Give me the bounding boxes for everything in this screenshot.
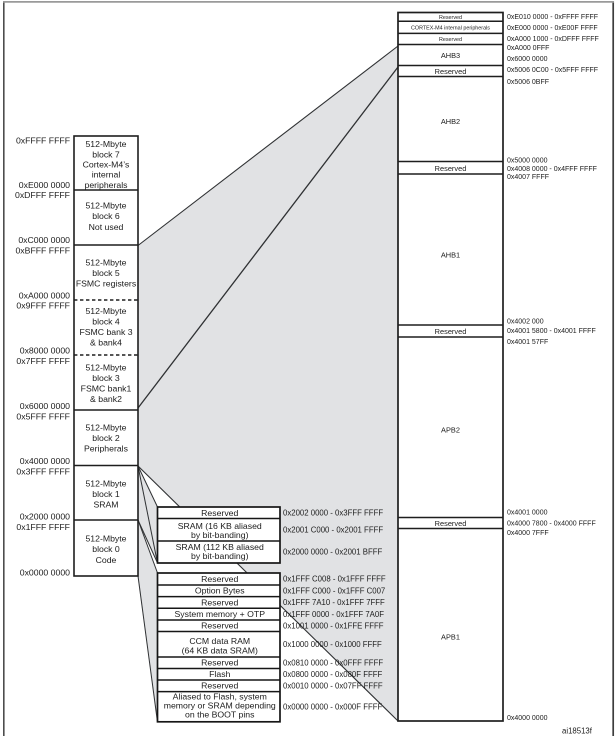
svg-text:block 3: block 3 <box>92 373 120 383</box>
svg-text:0xE000 0000: 0xE000 0000 <box>19 180 70 190</box>
svg-text:0x5000 0000: 0x5000 0000 <box>507 157 548 164</box>
svg-text:0x5006 0BFF: 0x5006 0BFF <box>507 79 549 86</box>
svg-text:peripherals: peripherals <box>85 180 129 190</box>
svg-text:0x0010 0000 - 0x07FF FFFF: 0x0010 0000 - 0x07FF FFFF <box>283 682 383 691</box>
svg-text:by bit-banding): by bit-banding) <box>191 551 249 561</box>
svg-text:512-Mbyte: 512-Mbyte <box>85 533 126 543</box>
svg-text:0xE010 0000 - 0xFFFF FFFF: 0xE010 0000 - 0xFFFF FFFF <box>507 14 598 21</box>
svg-text:Flash: Flash <box>209 669 230 679</box>
svg-text:Reserved: Reserved <box>439 15 462 21</box>
svg-text:0x3FFF FFFF: 0x3FFF FFFF <box>16 467 70 477</box>
svg-text:0x1FFF C000 - 0x1FFF C007: 0x1FFF C000 - 0x1FFF C007 <box>283 587 385 596</box>
svg-text:0x5FFF FFFF: 0x5FFF FFFF <box>16 412 70 422</box>
svg-text:Reserved: Reserved <box>435 67 467 76</box>
svg-text:Reserved: Reserved <box>201 508 238 518</box>
svg-text:0x2001 C000 - 0x2001 FFFF: 0x2001 C000 - 0x2001 FFFF <box>283 526 383 535</box>
svg-text:512-Mbyte: 512-Mbyte <box>85 258 126 268</box>
svg-text:FSMC registers: FSMC registers <box>76 278 137 288</box>
svg-text:0xA000 1000 - 0xDFFF FFFF: 0xA000 1000 - 0xDFFF FFFF <box>507 36 599 43</box>
svg-text:0xA000 0FFF: 0xA000 0FFF <box>507 45 549 52</box>
svg-text:0xA000 0000: 0xA000 0000 <box>19 291 70 301</box>
svg-text:0x1001 0000 - 0x1FFE FFFF: 0x1001 0000 - 0x1FFE FFFF <box>283 621 384 630</box>
svg-text:CCM data RAM: CCM data RAM <box>189 636 250 646</box>
svg-text:0x2000 0000: 0x2000 0000 <box>20 512 70 522</box>
svg-text:512-Mbyte: 512-Mbyte <box>85 306 126 316</box>
svg-text:0x4000 0000: 0x4000 0000 <box>507 715 548 722</box>
svg-text:0x4001 5800 - 0x4001 FFFF: 0x4001 5800 - 0x4001 FFFF <box>507 328 596 335</box>
svg-text:0xC000 0000: 0xC000 0000 <box>18 235 70 245</box>
svg-text:APB1: APB1 <box>441 633 460 642</box>
svg-text:0x0000 0000: 0x0000 0000 <box>20 568 70 578</box>
svg-text:AHB1: AHB1 <box>441 251 460 260</box>
svg-text:0x5006 0C00 - 0x5FFF FFFF: 0x5006 0C00 - 0x5FFF FFFF <box>507 67 598 74</box>
svg-text:Reserved: Reserved <box>435 519 467 528</box>
svg-text:Reserved: Reserved <box>435 327 467 336</box>
svg-text:Reserved: Reserved <box>435 164 467 173</box>
svg-text:block 0: block 0 <box>92 544 120 554</box>
svg-text:by bit-banding): by bit-banding) <box>191 530 249 540</box>
svg-text:512-Mbyte: 512-Mbyte <box>85 479 126 489</box>
svg-text:0x4000 0000: 0x4000 0000 <box>20 456 70 466</box>
svg-text:0xE000 0000 - 0xE00F FFFF: 0xE000 0000 - 0xE00F FFFF <box>507 25 598 32</box>
svg-text:block 5: block 5 <box>92 268 120 278</box>
svg-text:Reserved: Reserved <box>201 597 238 607</box>
svg-text:APB2: APB2 <box>441 426 460 435</box>
svg-text:0x4000 7800 - 0x4000 FFFF: 0x4000 7800 - 0x4000 FFFF <box>507 520 596 527</box>
svg-text:0x8000 0000: 0x8000 0000 <box>20 346 70 356</box>
svg-text:Reserved: Reserved <box>439 37 462 43</box>
svg-text:512-Mbyte: 512-Mbyte <box>85 362 126 372</box>
svg-text:0x4007 FFFF: 0x4007 FFFF <box>507 174 549 181</box>
svg-text:0x1FFF 0000 - 0x1FFF 7A0F: 0x1FFF 0000 - 0x1FFF 7A0F <box>283 610 384 619</box>
svg-text:ai18513f: ai18513f <box>562 727 593 736</box>
svg-text:0x2000 0000 - 0x2001 BFFF: 0x2000 0000 - 0x2001 BFFF <box>283 548 382 557</box>
svg-text:Peripherals: Peripherals <box>84 443 129 453</box>
svg-text:0x2002 0000 - 0x3FFF FFFF: 0x2002 0000 - 0x3FFF FFFF <box>283 509 383 518</box>
svg-text:0x1FFF C008 - 0x1FFF FFFF: 0x1FFF C008 - 0x1FFF FFFF <box>283 575 386 584</box>
svg-text:block 7: block 7 <box>92 149 120 159</box>
svg-text:0xBFFF FFFF: 0xBFFF FFFF <box>15 246 70 256</box>
svg-text:Reserved: Reserved <box>201 621 238 631</box>
svg-text:0x1000 0000 - 0x1000 FFFF: 0x1000 0000 - 0x1000 FFFF <box>283 640 382 649</box>
svg-text:Not used: Not used <box>89 222 124 232</box>
svg-text:0xFFFF FFFF: 0xFFFF FFFF <box>16 136 70 146</box>
svg-text:0x0810 0000 - 0x0FFF FFFF: 0x0810 0000 - 0x0FFF FFFF <box>283 659 383 668</box>
svg-text:CORTEX-M4 internal peripherals: CORTEX-M4 internal peripherals <box>411 25 490 31</box>
svg-text:block 4: block 4 <box>92 316 120 326</box>
svg-text:512-Mbyte: 512-Mbyte <box>85 139 126 149</box>
svg-text:0xDFFF FFFF: 0xDFFF FFFF <box>15 190 70 200</box>
svg-text:Reserved: Reserved <box>201 574 238 584</box>
svg-text:System memory + OTP: System memory + OTP <box>174 609 265 619</box>
svg-text:internal: internal <box>92 170 121 180</box>
svg-text:0x4001 0000: 0x4001 0000 <box>507 510 548 517</box>
svg-text:0x0800 0000 - 0x080F FFFF: 0x0800 0000 - 0x080F FFFF <box>283 670 382 679</box>
svg-text:0x0000 0000 - 0x000F FFFF: 0x0000 0000 - 0x000F FFFF <box>283 702 382 711</box>
svg-text:(64 KB data SRAM): (64 KB data SRAM) <box>182 645 258 655</box>
svg-text:& bank4: & bank4 <box>90 337 122 347</box>
svg-text:& bank2: & bank2 <box>90 394 122 404</box>
svg-text:0x9FFF FFFF: 0x9FFF FFFF <box>16 301 70 311</box>
svg-text:0x1FFF FFFF: 0x1FFF FFFF <box>16 522 70 532</box>
svg-text:Code: Code <box>96 555 117 565</box>
svg-text:512-Mbyte: 512-Mbyte <box>85 200 126 210</box>
svg-text:0x1FFF 7A10 - 0x1FFF 7FFF: 0x1FFF 7A10 - 0x1FFF 7FFF <box>283 598 385 607</box>
svg-text:0x6000 0000: 0x6000 0000 <box>20 401 70 411</box>
svg-text:on the BOOT pins: on the BOOT pins <box>185 710 255 720</box>
svg-text:AHB3: AHB3 <box>441 51 460 60</box>
svg-text:Reserved: Reserved <box>201 681 238 691</box>
svg-text:FSMC bank1: FSMC bank1 <box>81 383 132 393</box>
svg-text:0x4008 0000 - 0x4FFF FFFF: 0x4008 0000 - 0x4FFF FFFF <box>507 166 597 173</box>
svg-text:AHB2: AHB2 <box>441 117 460 126</box>
svg-text:Reserved: Reserved <box>201 658 238 668</box>
svg-text:block 2: block 2 <box>92 433 120 443</box>
svg-text:FSMC bank 3: FSMC bank 3 <box>79 327 132 337</box>
svg-text:512-Mbyte: 512-Mbyte <box>85 422 126 432</box>
svg-text:SRAM: SRAM <box>93 500 118 510</box>
svg-text:0x6000 0000: 0x6000 0000 <box>507 56 548 63</box>
svg-text:Option Bytes: Option Bytes <box>195 586 245 596</box>
svg-text:block 6: block 6 <box>92 211 120 221</box>
svg-text:0x4001 57FF: 0x4001 57FF <box>507 339 548 346</box>
svg-text:Cortex-M4’s: Cortex-M4’s <box>83 160 130 170</box>
svg-text:0x7FFF FFFF: 0x7FFF FFFF <box>16 356 70 366</box>
svg-text:0x4000 7FFF: 0x4000 7FFF <box>507 530 549 537</box>
svg-text:0x4002 000: 0x4002 000 <box>507 319 544 326</box>
svg-text:block 1: block 1 <box>92 489 120 499</box>
